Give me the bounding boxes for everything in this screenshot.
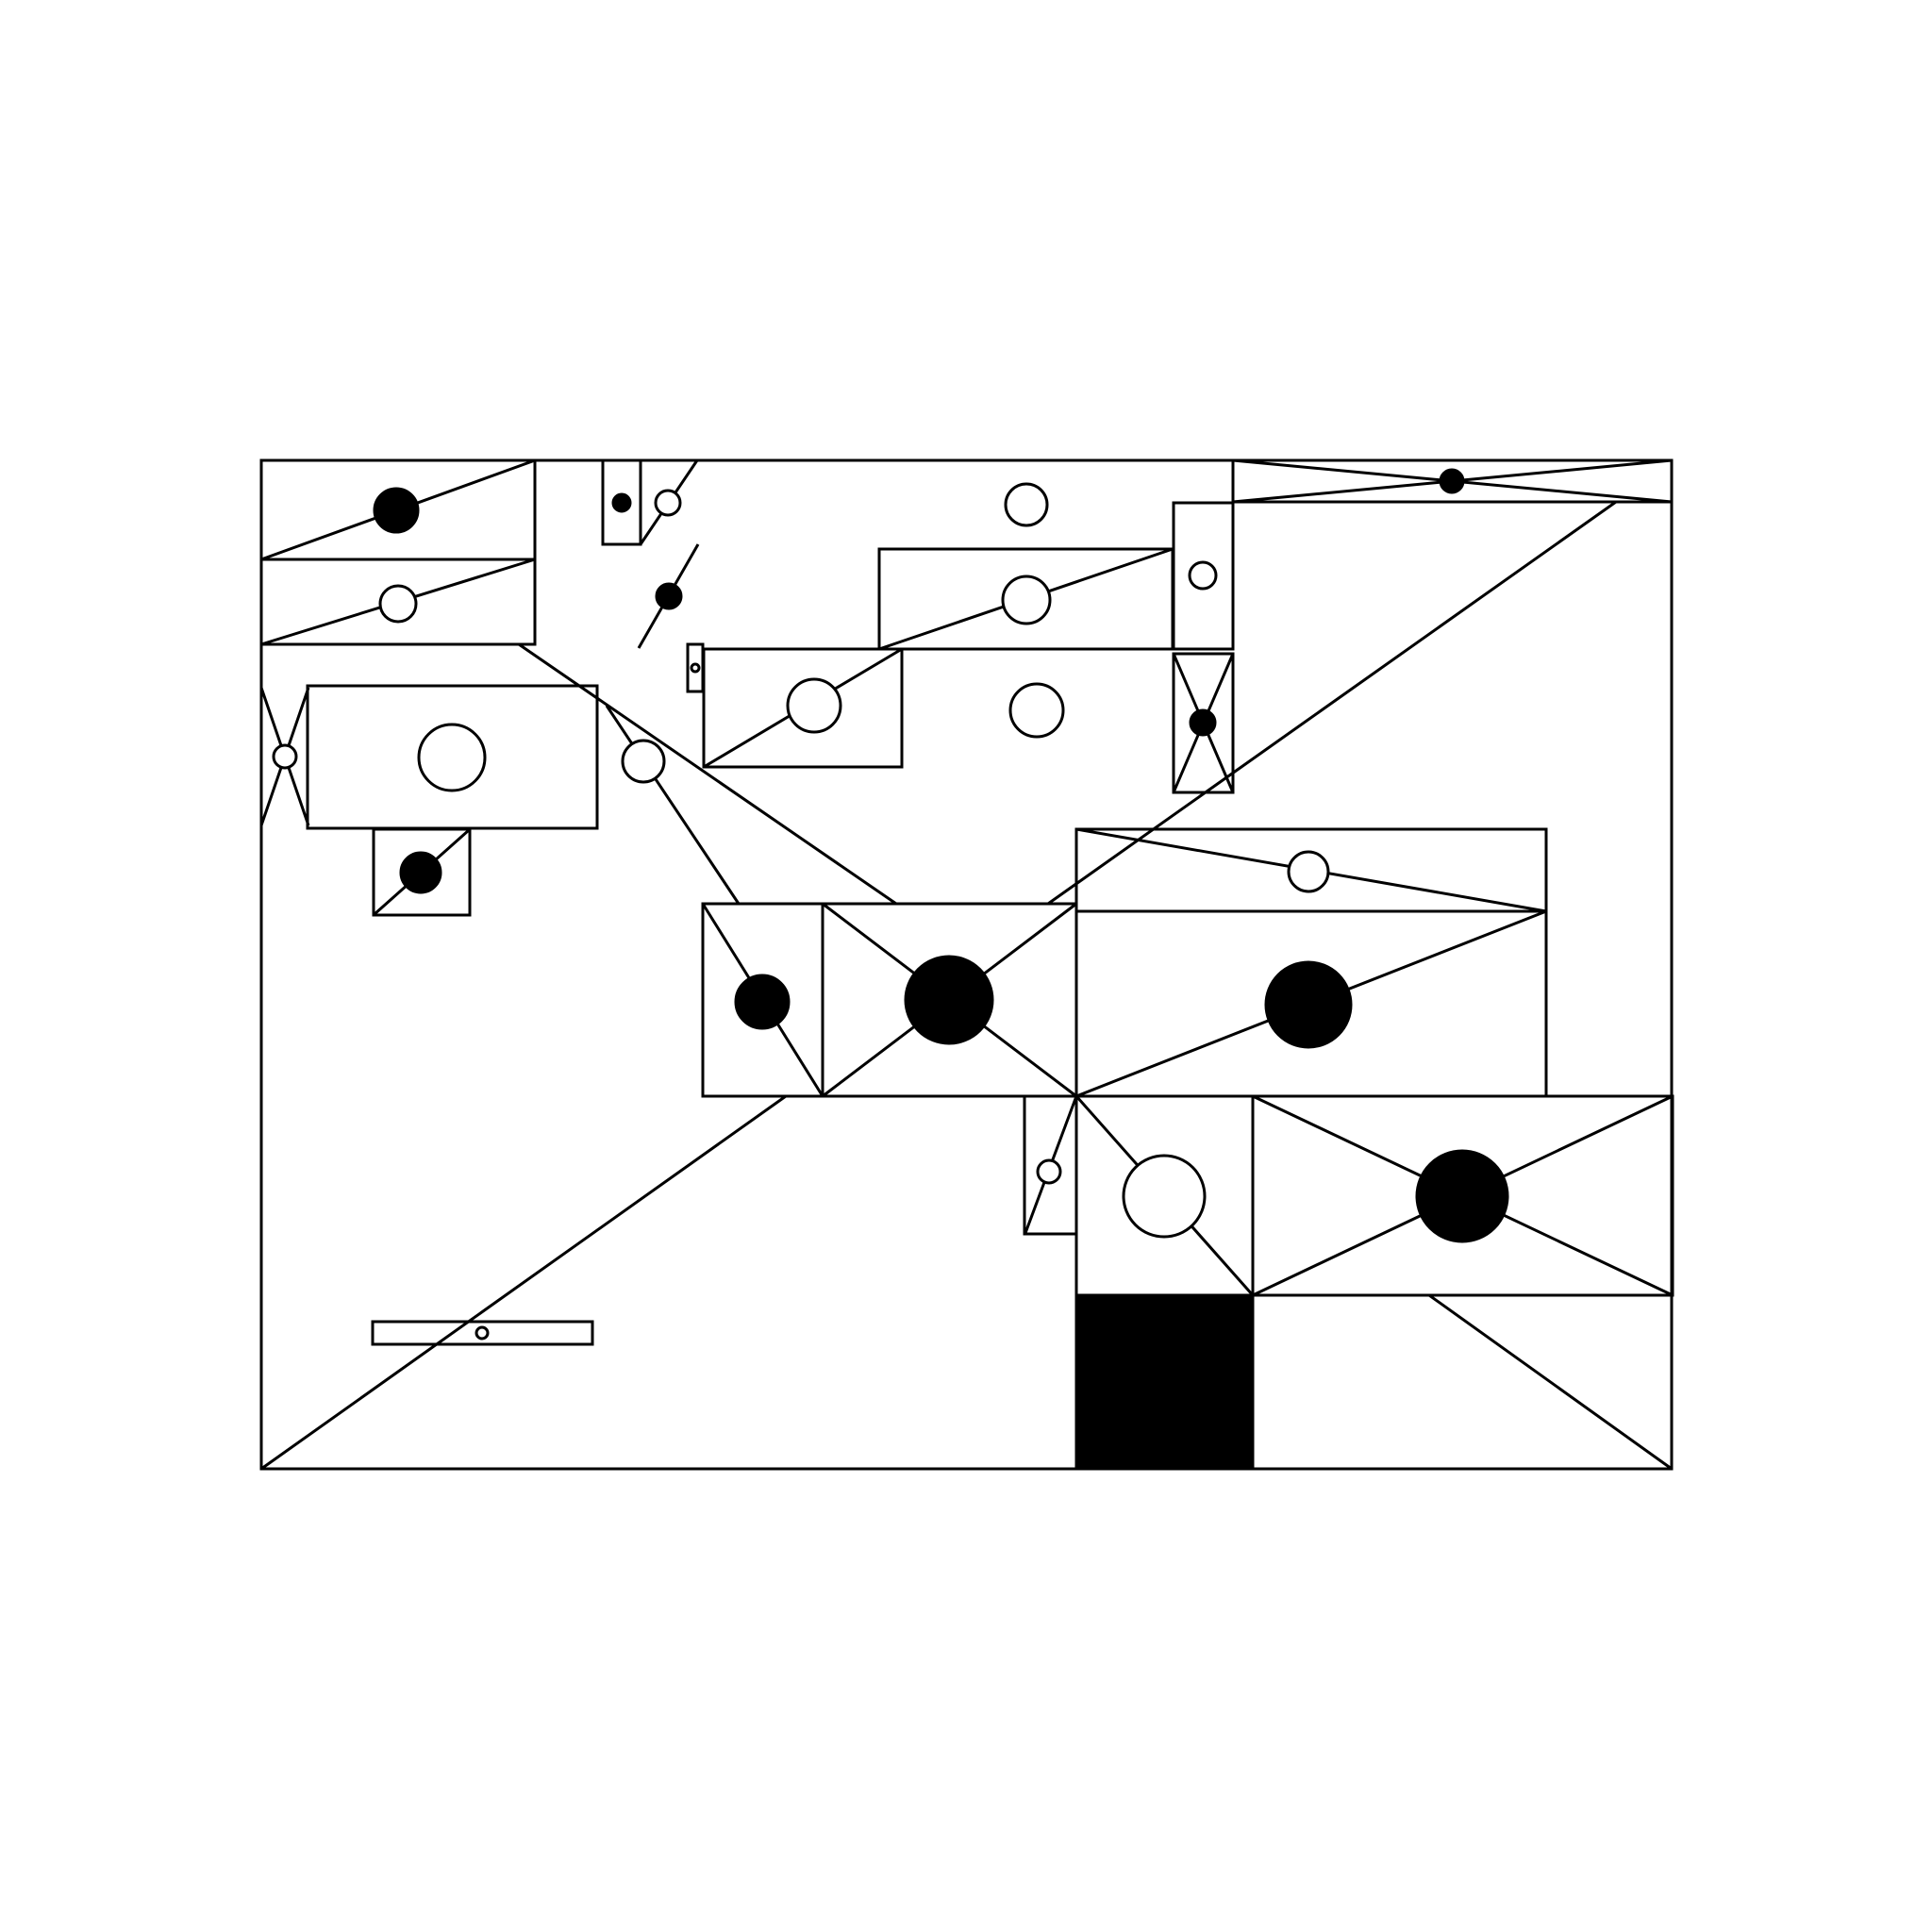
circle-filled-bottom-right-x <box>1417 1151 1507 1241</box>
branch-line-gamma <box>607 706 739 904</box>
circle-open-bowtie-left <box>274 745 296 768</box>
circle-filled-rect-a <box>375 489 418 532</box>
circle-filled-right-mid <box>1266 962 1351 1047</box>
circle-open-free-mid <box>1010 684 1063 737</box>
circle-filled-top-right-x <box>1441 470 1463 492</box>
circle-filled-cluster-left <box>736 975 789 1028</box>
circle-filled-small-square <box>401 853 441 892</box>
circle-open-gamma <box>623 741 664 782</box>
circle-open-big-rect <box>419 724 485 791</box>
circle-open-rect-c <box>788 679 841 732</box>
circle-filled-top-small-rect <box>613 494 630 511</box>
circle-open-hinge <box>691 664 699 672</box>
circle-open-free-top <box>1006 484 1047 525</box>
long-diagonal-beta <box>519 644 896 904</box>
circle-open-rect-b <box>380 586 416 622</box>
circle-open-column-top <box>1190 562 1216 589</box>
abstract-composition-page <box>0 0 1932 1932</box>
circle-open-top-line <box>656 491 680 515</box>
bottom-right-lower-diagonal <box>1429 1295 1672 1469</box>
circle-open-lower-white <box>1124 1156 1205 1237</box>
circle-filled-cluster-x <box>906 957 992 1043</box>
circle-open-wide-top <box>1289 852 1328 891</box>
circle-filled-bowtie <box>1191 710 1215 735</box>
circle-open-thin-bar <box>476 1327 488 1339</box>
circle-open-top-middle-rect <box>1003 576 1050 624</box>
long-diagonal-to-corner <box>261 1096 786 1469</box>
circle-open-cluster-small <box>1038 1160 1060 1183</box>
abstract-geometric-drawing <box>0 0 1932 1932</box>
circle-filled-dot-segment <box>657 584 681 608</box>
black-square <box>1076 1295 1253 1469</box>
